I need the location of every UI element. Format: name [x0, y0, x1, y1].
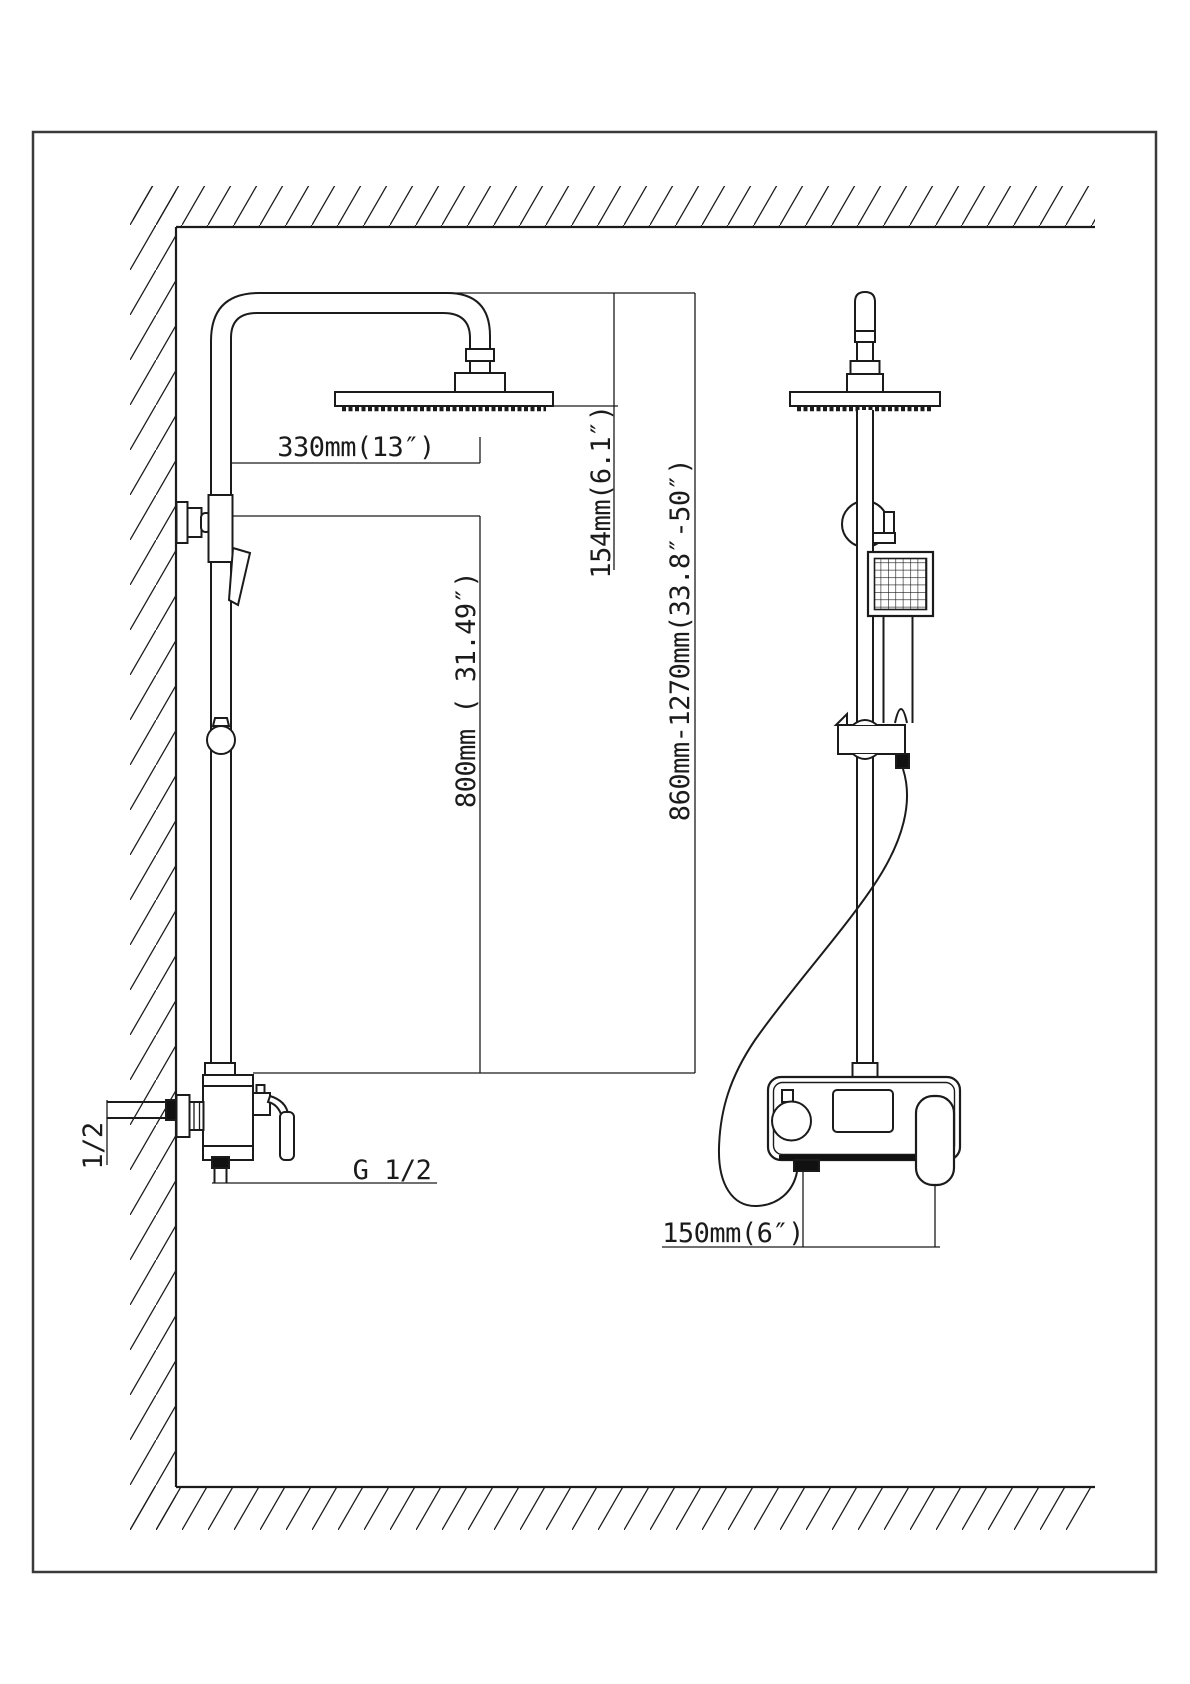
- supply-nut: [190, 1102, 204, 1130]
- supply-flange: [177, 1095, 190, 1137]
- mixer-front: [768, 1063, 960, 1185]
- riser-top-front: [847, 292, 883, 392]
- mixer-outlet: [212, 1157, 229, 1183]
- sheet-border: [33, 132, 1156, 1572]
- label-supply-thread: 1/2: [78, 1122, 109, 1169]
- label-outlet-offset: 150mm(6″): [662, 1218, 804, 1249]
- wall-bracket: [177, 495, 233, 562]
- mixer-lever-blade: [280, 1112, 294, 1160]
- label-outlet-thread: G 1/2: [353, 1155, 432, 1186]
- head-connector-side: [455, 349, 505, 392]
- front-view: [719, 292, 960, 1206]
- hand-shower-nozzle-tip: [895, 709, 907, 723]
- hand-shower-side: [229, 548, 250, 605]
- shower-head-front: [790, 392, 940, 406]
- hand-shower-front: [868, 552, 933, 723]
- mixer-inlet-collar: [853, 1063, 878, 1077]
- label-riser-range: 860mm-1270mm(33.8″-50″): [665, 459, 696, 821]
- label-head-to-mixer: 800mm ( 31.49″): [451, 572, 482, 808]
- hose-connector: [794, 1160, 819, 1171]
- label-head-height: 154mm(6.1″): [586, 405, 617, 578]
- mixer-lever-front: [916, 1096, 954, 1185]
- mixer-knob: [772, 1102, 811, 1141]
- mixer-display: [833, 1090, 893, 1132]
- shower-installation-diagram: 330mm(13″) 154mm(6.1″) 860mm-1270mm(33.8…: [0, 0, 1190, 1684]
- mixer-knob-tab: [782, 1090, 793, 1102]
- shower-arm-inner: [231, 313, 470, 1063]
- wall-section: [130, 186, 1095, 1530]
- hand-shower-face-grid: [875, 559, 927, 610]
- supply-seal: [166, 1100, 177, 1120]
- mixer-side: [203, 1063, 294, 1160]
- mixer-handle-stub: [257, 1085, 265, 1093]
- drawing-page: 330mm(13″) 154mm(6.1″) 860mm-1270mm(33.8…: [0, 0, 1190, 1684]
- holder-bracket-arm: [873, 533, 895, 543]
- wall-hatch: [130, 186, 176, 1530]
- clamp-knob: [896, 754, 909, 768]
- ceiling-hatch: [133, 186, 1095, 227]
- mixer-handle-pivot: [253, 1093, 270, 1115]
- label-arm-reach: 330mm(13″): [277, 432, 435, 463]
- shower-head-side: [335, 392, 553, 406]
- floor-hatch: [130, 1487, 1092, 1530]
